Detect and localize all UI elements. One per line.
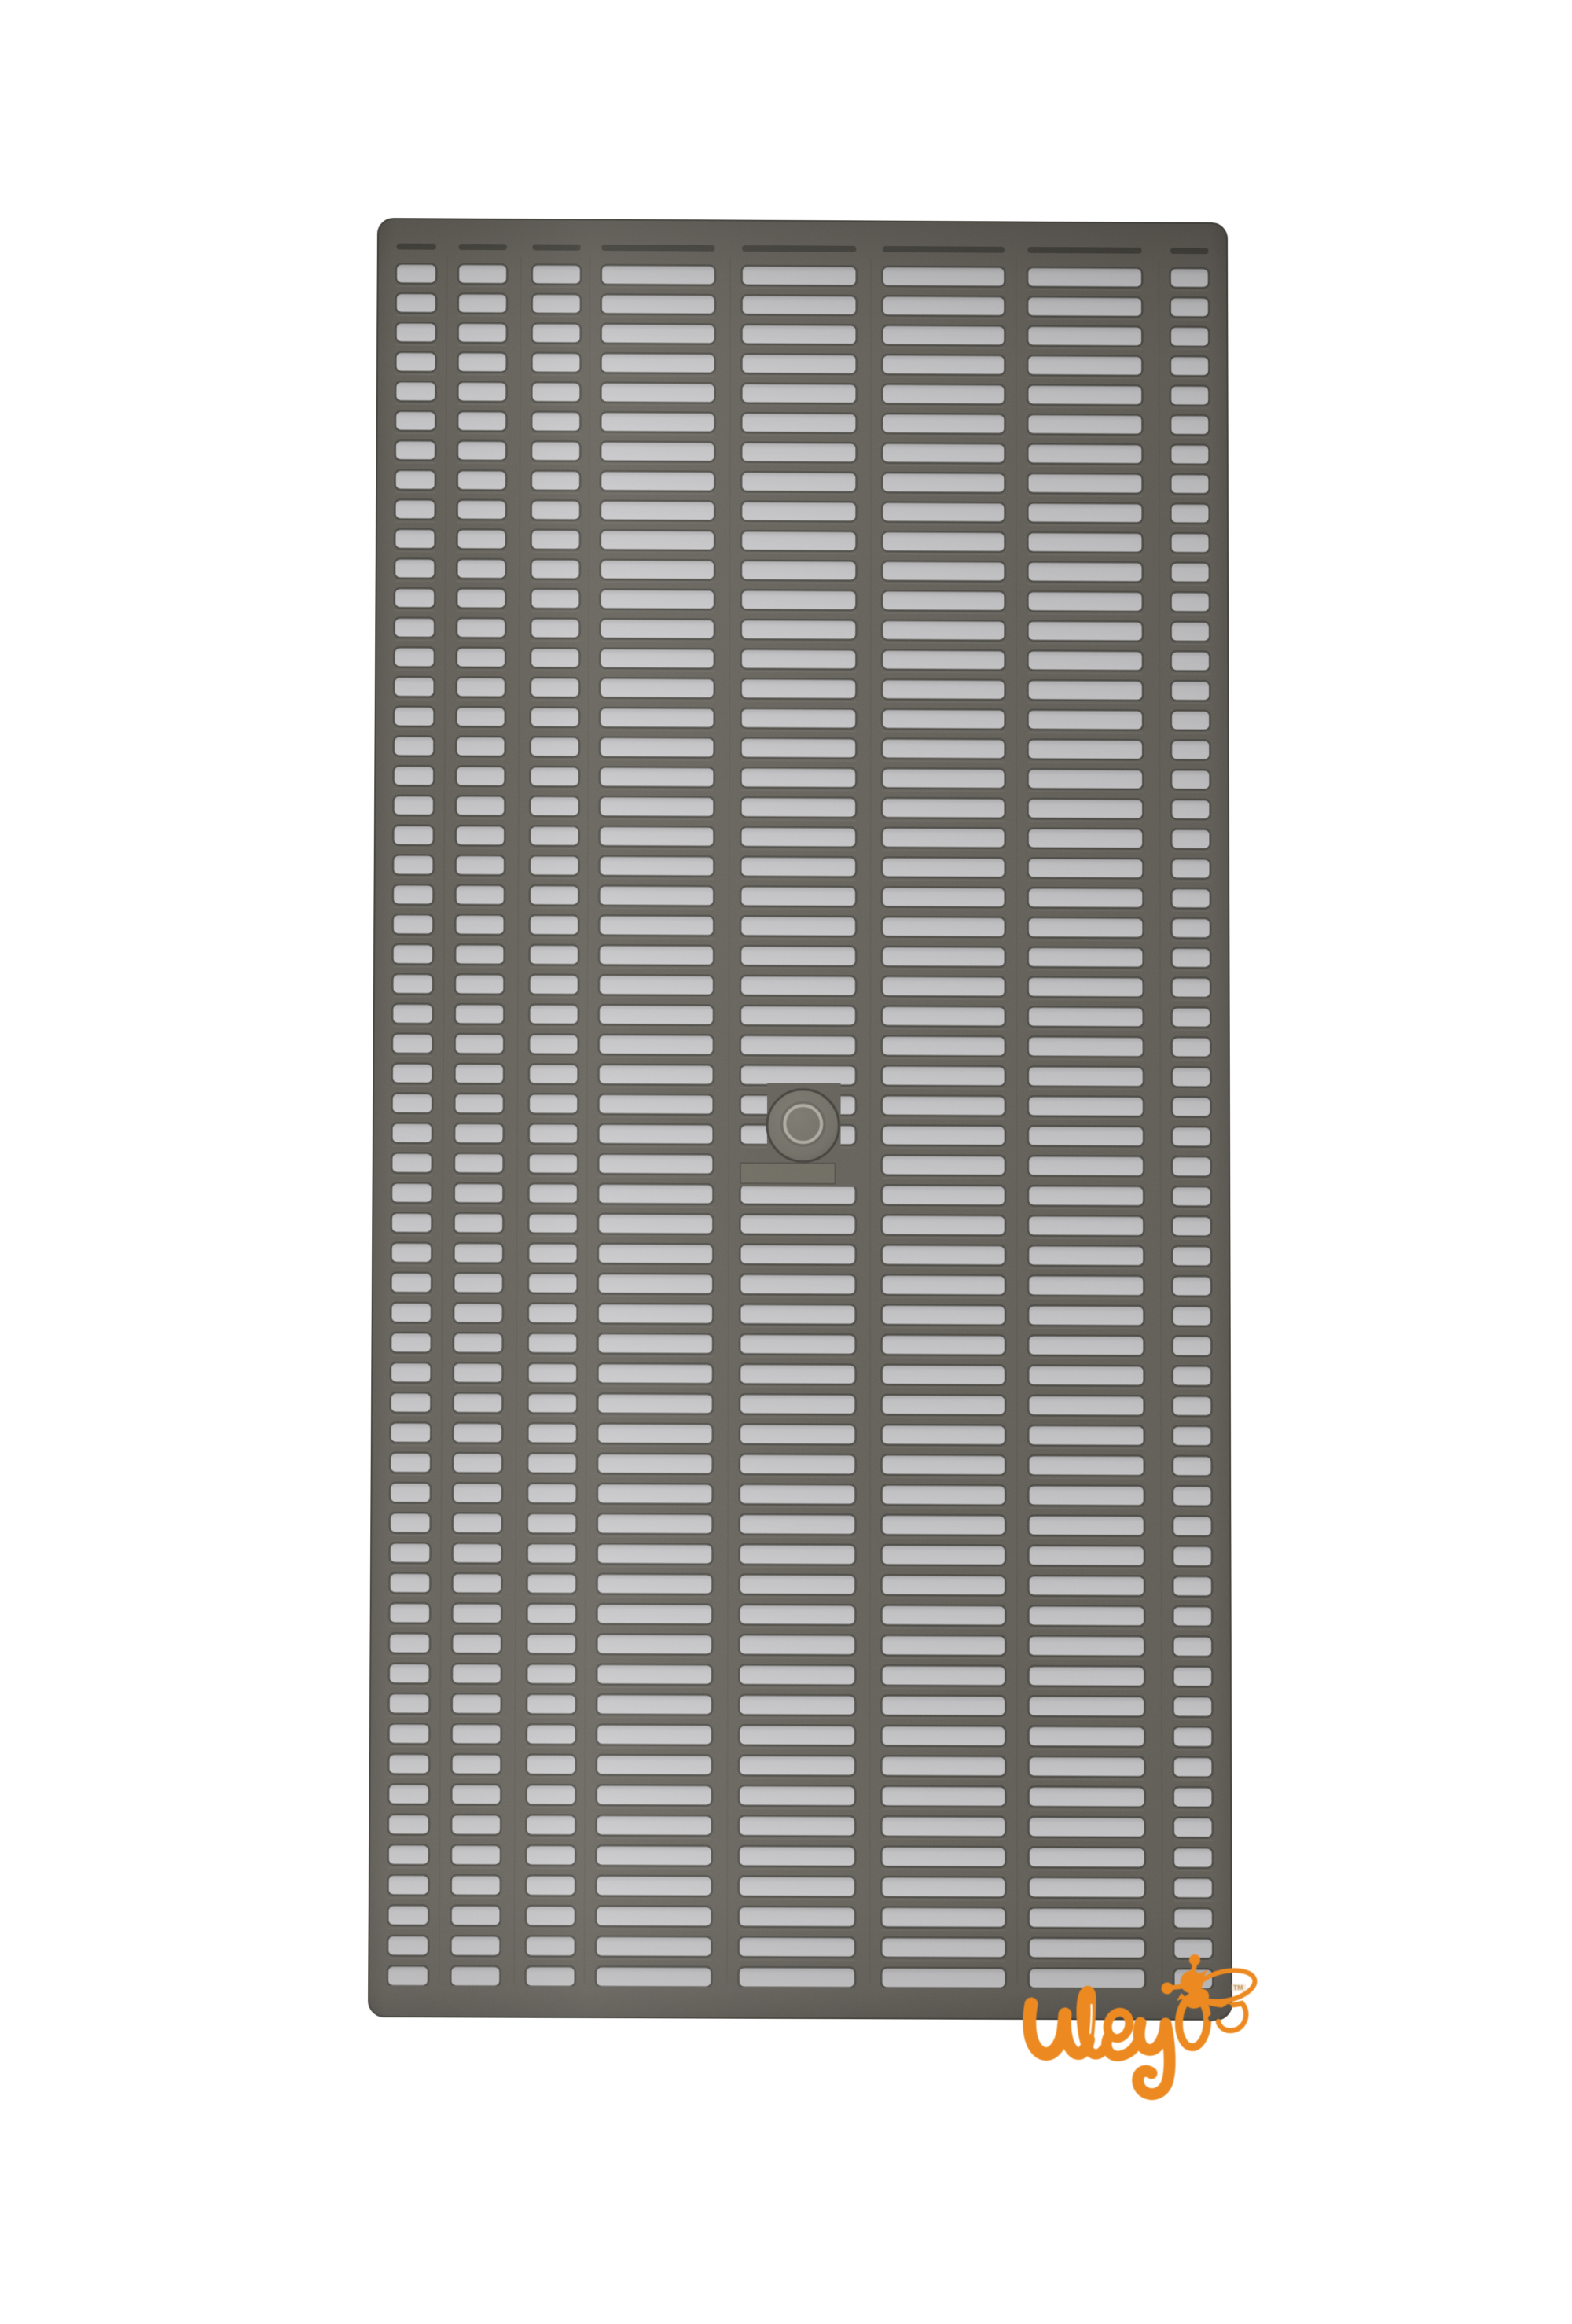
svg-text:TM: TM — [1233, 1984, 1243, 1991]
